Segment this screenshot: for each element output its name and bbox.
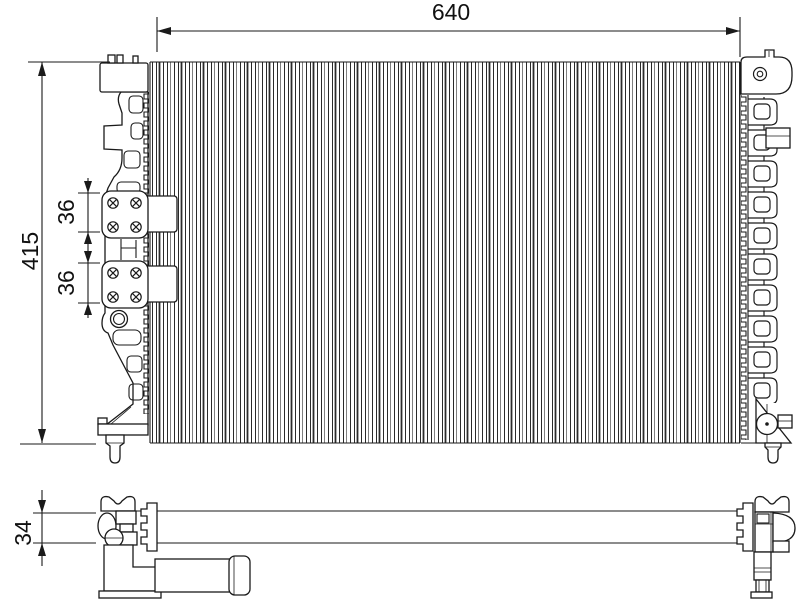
profile-band: [135, 511, 737, 543]
right-lower-leg: [756, 580, 769, 592]
left-horn-bracket: [101, 497, 135, 511]
arrow-up-icon: [84, 232, 92, 244]
right-body: [755, 512, 773, 552]
left-tank-core-joint: [142, 92, 149, 414]
left-base-flange: [99, 591, 161, 598]
arrow-up-icon: [38, 62, 46, 76]
core-fins: [150, 62, 740, 443]
arrow-down-icon: [38, 500, 46, 513]
radiator-technical-drawing: 640 415 36 36: [0, 0, 800, 599]
right-bottom-bracket: [741, 399, 792, 463]
dimension-height: 415: [17, 62, 110, 444]
right-clip-bracket: [737, 503, 753, 551]
screw-icon: [108, 222, 118, 232]
left-lower-body: [104, 545, 157, 591]
arrow-left-icon: [157, 27, 171, 35]
pivot-center-dot: [765, 422, 769, 426]
arrow-down-icon: [84, 251, 92, 263]
left-end-fitting: [98, 497, 250, 598]
left-top-tab-2: [117, 55, 123, 63]
dimension-depth: 34: [10, 490, 96, 566]
dimension-plates: 36 36: [53, 178, 100, 318]
right-leg: [754, 552, 771, 580]
screw-icon: [131, 292, 141, 302]
screw-icon: [131, 198, 141, 208]
pivot-tab: [778, 415, 792, 428]
screw-icon: [131, 222, 141, 232]
right-foot-peg: [765, 443, 781, 463]
dimension-width-label: 640: [432, 0, 470, 25]
right-hose-bulge: [773, 513, 795, 542]
radiator-core: [150, 62, 740, 443]
right-tank: [741, 50, 792, 463]
screw-icon: [108, 268, 118, 278]
front-view: 640 415 36 36: [17, 0, 792, 463]
arrow-down-icon: [84, 181, 92, 193]
arrow-right-icon: [726, 27, 740, 35]
right-foot-flange: [751, 592, 772, 598]
drawing-canvas: 640 415 36 36: [0, 0, 800, 599]
upper-core-block: [145, 196, 177, 232]
left-top-bracket: [100, 63, 148, 92]
dimension-lower-plate-label: 36: [53, 270, 79, 296]
left-clip-bracket: [141, 503, 157, 551]
filler-neck-mid: [120, 524, 133, 532]
plates-extension-ticks: [78, 193, 100, 303]
left-top-tab-3: [133, 56, 138, 63]
bracket-hole: [754, 68, 767, 81]
right-bulge-base: [773, 541, 789, 552]
dimension-upper-plate-label: 36: [53, 199, 79, 225]
right-side-tab: [766, 128, 790, 148]
hose-stub-pipe: [155, 559, 231, 592]
dimension-height-label: 415: [17, 232, 43, 270]
screw-icon: [108, 292, 118, 302]
dimension-depth-label: 34: [10, 520, 36, 546]
arrow-up-icon: [84, 303, 92, 315]
arrow-up-icon: [38, 543, 46, 556]
screw-icon: [131, 268, 141, 278]
right-tank-core-joint: [741, 95, 748, 440]
right-horn-bracket: [755, 497, 789, 512]
bottom-profile-view: 34: [10, 490, 795, 598]
arrow-down-icon: [38, 429, 46, 443]
screw-icon: [108, 198, 118, 208]
left-tank-body: [102, 92, 148, 425]
right-end-fitting: [737, 497, 795, 598]
dimension-width: 640: [157, 0, 740, 57]
filler-neck-upper: [116, 511, 136, 524]
end-port: [105, 529, 123, 547]
lower-core-block: [145, 266, 177, 302]
hose-stub-end: [229, 556, 250, 595]
drain-port: [111, 311, 128, 328]
